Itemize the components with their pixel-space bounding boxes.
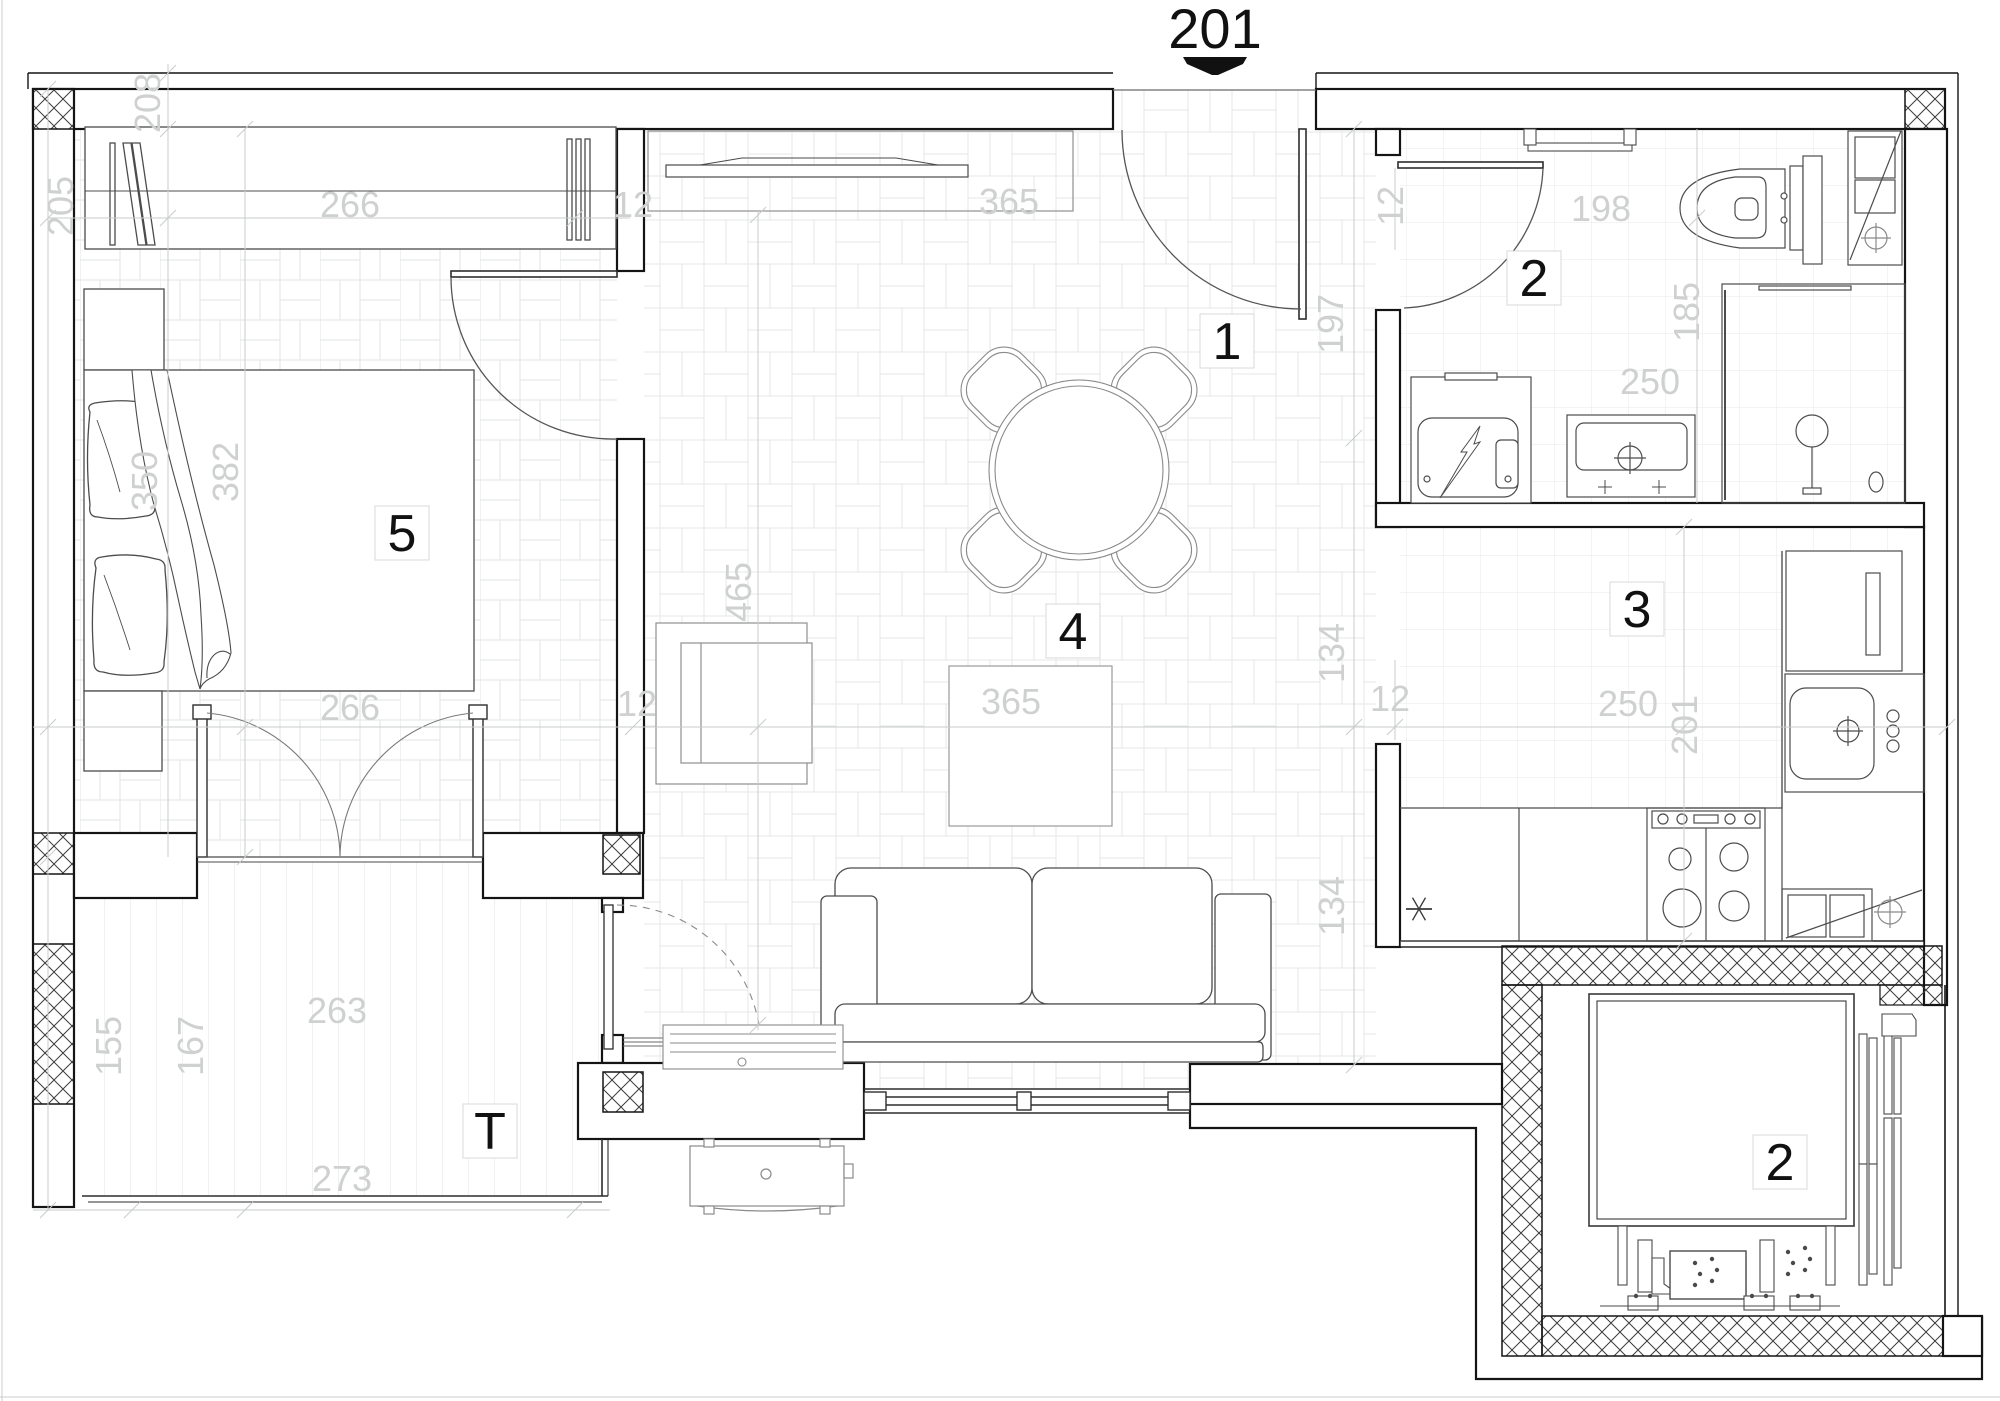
svg-text:201: 201: [1664, 695, 1705, 755]
svg-text:2: 2: [1766, 1134, 1795, 1192]
svg-text:134: 134: [1311, 623, 1352, 683]
svg-text:2: 2: [1520, 250, 1549, 308]
svg-text:465: 465: [718, 562, 759, 622]
svg-text:365: 365: [981, 681, 1041, 722]
svg-text:12: 12: [1370, 186, 1411, 226]
svg-text:5: 5: [388, 505, 417, 563]
svg-text:208: 208: [127, 73, 168, 133]
svg-text:197: 197: [1310, 294, 1351, 354]
svg-text:266: 266: [320, 687, 380, 728]
svg-text:1: 1: [1213, 313, 1242, 371]
svg-text:250: 250: [1598, 683, 1658, 724]
svg-text:155: 155: [88, 1016, 129, 1076]
svg-text:T: T: [474, 1103, 506, 1161]
svg-text:12: 12: [1370, 678, 1410, 719]
svg-text:198: 198: [1571, 188, 1631, 229]
svg-text:167: 167: [170, 1016, 211, 1076]
svg-text:266: 266: [320, 184, 380, 225]
svg-text:12: 12: [613, 184, 653, 225]
svg-text:382: 382: [205, 442, 246, 502]
svg-text:365: 365: [979, 181, 1039, 222]
svg-text:250: 250: [1620, 361, 1680, 402]
svg-text:263: 263: [307, 990, 367, 1031]
svg-text:350: 350: [124, 451, 165, 511]
svg-text:3: 3: [1623, 581, 1652, 639]
svg-text:201: 201: [1168, 0, 1261, 60]
svg-text:273: 273: [312, 1158, 372, 1199]
svg-text:134: 134: [1311, 876, 1352, 936]
svg-text:4: 4: [1059, 603, 1088, 661]
svg-text:12: 12: [617, 683, 657, 724]
svg-text:205: 205: [40, 176, 81, 236]
svg-text:185: 185: [1666, 282, 1707, 342]
